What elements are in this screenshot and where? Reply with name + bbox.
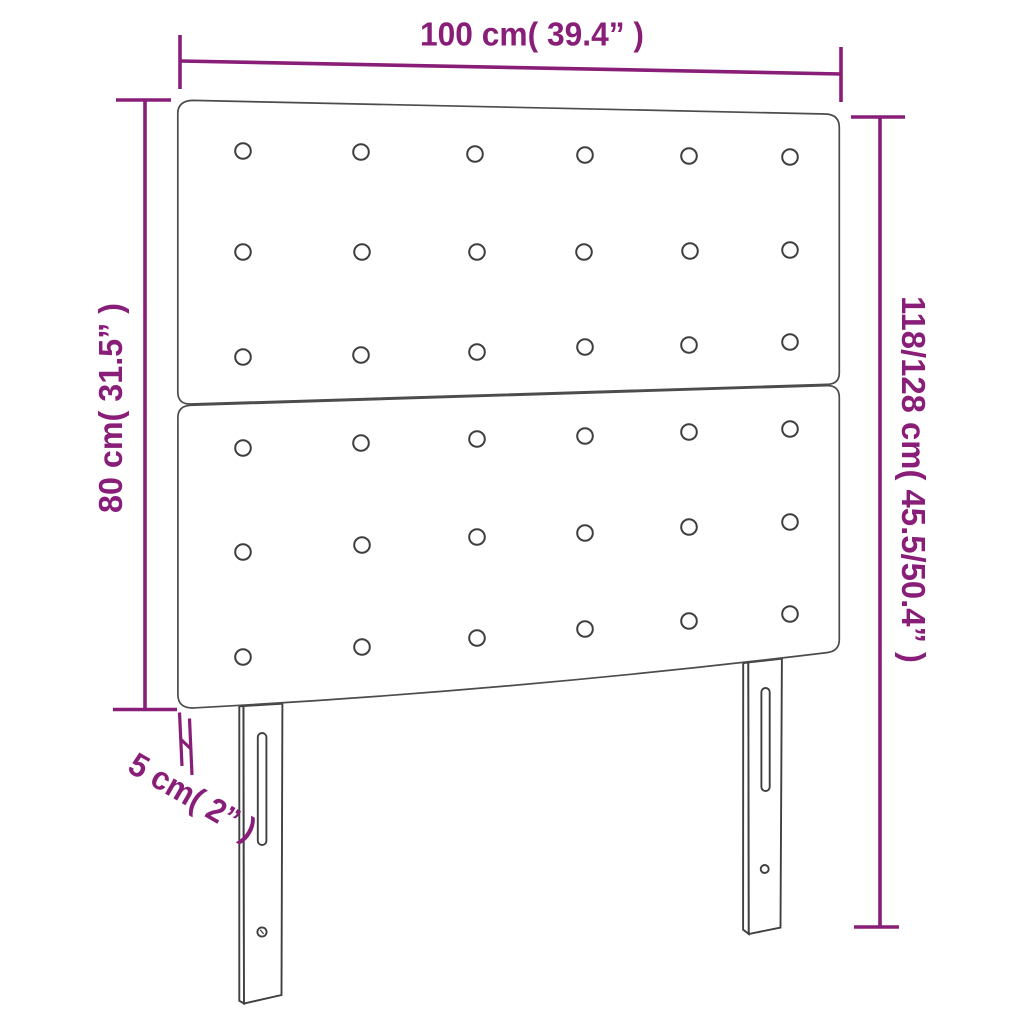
- svg-text:80 cm( 31.5” ): 80 cm( 31.5” ): [92, 303, 129, 513]
- svg-text:118/128 cm( 45.5/50.4” ): 118/128 cm( 45.5/50.4” ): [895, 296, 932, 663]
- svg-text:100 cm( 39.4” ): 100 cm( 39.4” ): [420, 15, 644, 52]
